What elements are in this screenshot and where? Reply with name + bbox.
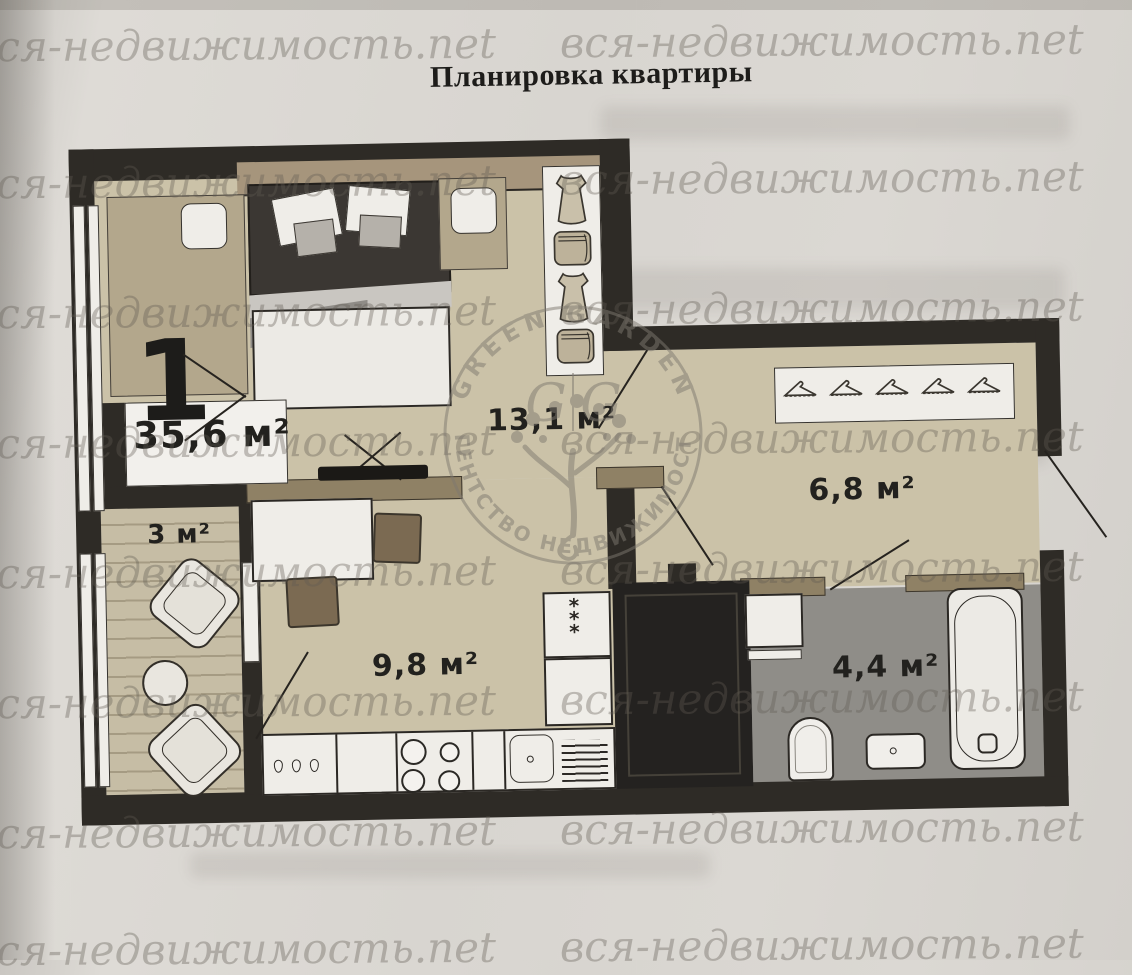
- cushion: [358, 215, 402, 249]
- toilet-bowl: [794, 725, 827, 774]
- page-title: Планировка квартиры: [430, 55, 753, 95]
- hanger-icon: [828, 378, 864, 399]
- armchair-seat: [159, 568, 229, 638]
- freezer-marks: * * *: [569, 600, 580, 639]
- tv-icon: [318, 465, 428, 481]
- nightstand-top: [450, 187, 497, 234]
- storage-unit-outline: [625, 592, 742, 776]
- wardrobe-pouf: [181, 203, 228, 250]
- washing-machine-icon: [745, 593, 804, 648]
- chair: [373, 513, 423, 565]
- hanger-icon: [966, 375, 1002, 396]
- folded-clothes-icon: [551, 227, 594, 268]
- dining-table: [251, 498, 375, 582]
- hallway-area-label: 6,8 м²: [808, 471, 916, 508]
- wall: [1040, 550, 1069, 806]
- kitchen-area-label: 9,8 м²: [372, 647, 480, 684]
- armchair-seat: [158, 714, 232, 788]
- sink-drain: [527, 756, 534, 763]
- bathroom-area-label: 4,4 м²: [832, 648, 940, 685]
- entrance-door-swing: [1044, 450, 1107, 538]
- dress-icon: [552, 173, 591, 226]
- fridge-icon: [544, 657, 613, 726]
- hanger-icon: [920, 376, 956, 397]
- agency-stamp: GREEN GARDEN АГЕНТСТВО НЕДВИЖИМОСТИ G G: [428, 290, 718, 580]
- drainer-icon: [561, 739, 608, 782]
- hanger-icon: [782, 379, 818, 400]
- sink-drain: [890, 747, 897, 754]
- bed: [252, 306, 452, 410]
- wall: [1035, 318, 1062, 456]
- window: [80, 553, 111, 787]
- cushion: [293, 219, 337, 258]
- washing-machine-door: [748, 649, 802, 660]
- chair: [285, 576, 340, 629]
- balcony-area-label: 3 м²: [147, 519, 211, 550]
- bathtub-drain: [977, 733, 997, 753]
- hanger-icon: [874, 377, 910, 398]
